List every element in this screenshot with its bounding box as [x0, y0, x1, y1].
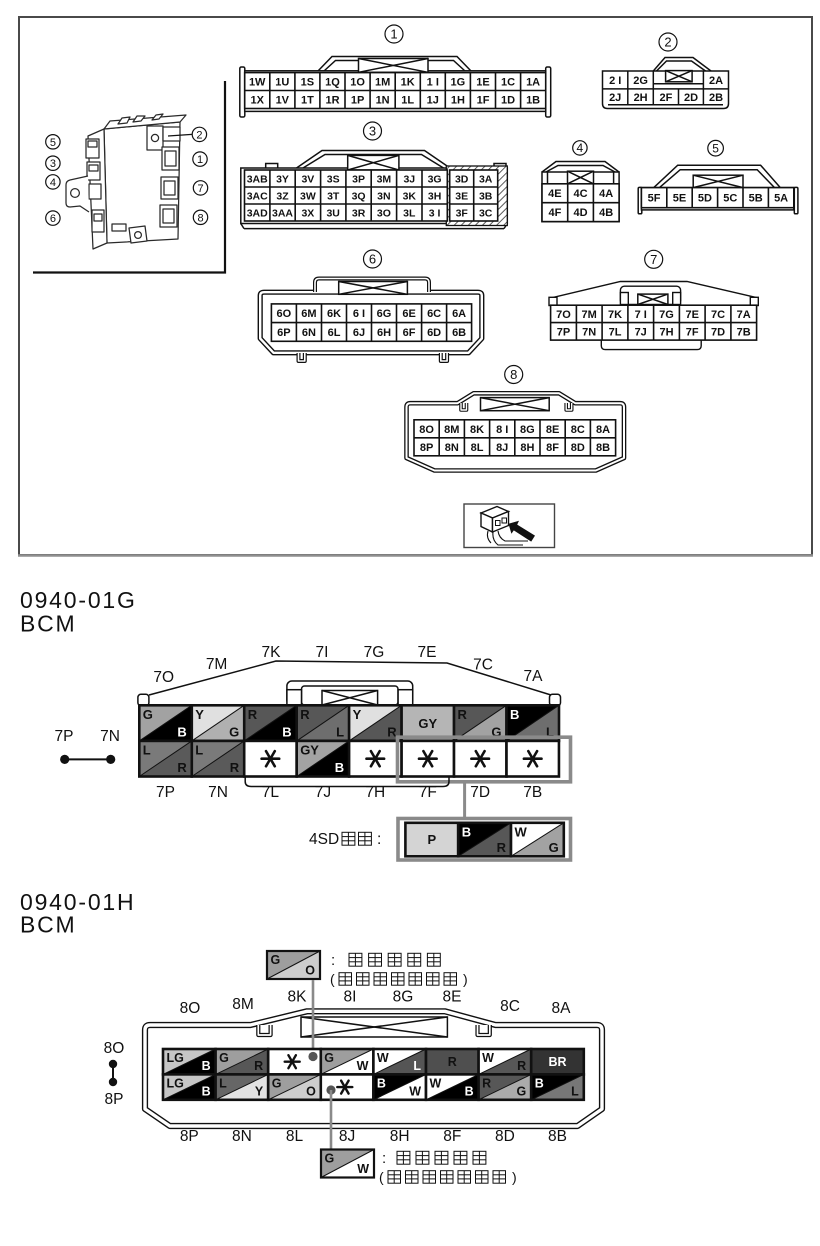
svg-text:3D: 3D	[455, 173, 469, 185]
svg-text:8 I: 8 I	[496, 424, 508, 436]
svg-text:8H: 8H	[520, 442, 534, 454]
svg-text:1P: 1P	[351, 95, 364, 107]
svg-text:5E: 5E	[673, 193, 686, 205]
svg-text:6L: 6L	[328, 327, 341, 339]
svg-text:1S: 1S	[301, 77, 314, 89]
svg-text:6E: 6E	[402, 308, 415, 320]
svg-text:G: G	[272, 1076, 282, 1090]
svg-text:6 I: 6 I	[353, 308, 365, 320]
svg-text:G: G	[219, 1051, 229, 1065]
svg-text:): )	[512, 1169, 517, 1185]
svg-text:4C: 4C	[573, 188, 587, 200]
svg-text:P: P	[427, 832, 436, 847]
svg-text:6M: 6M	[301, 308, 316, 320]
svg-text:3E: 3E	[455, 190, 468, 202]
svg-text:O: O	[305, 964, 315, 978]
svg-text:8D: 8D	[571, 442, 585, 454]
svg-text:B: B	[202, 1059, 211, 1073]
svg-text:8C: 8C	[500, 998, 520, 1015]
svg-text:8O: 8O	[419, 424, 434, 436]
svg-text:7H: 7H	[365, 784, 385, 801]
svg-text:R: R	[300, 707, 310, 722]
svg-text:1J: 1J	[427, 95, 439, 107]
svg-text:G: G	[549, 840, 559, 855]
svg-text:): )	[463, 971, 468, 987]
svg-text:8K: 8K	[288, 989, 308, 1006]
svg-text:3R: 3R	[352, 207, 366, 219]
svg-text:1C: 1C	[501, 77, 515, 89]
svg-text:8A: 8A	[596, 424, 610, 436]
svg-text:7B: 7B	[737, 326, 751, 338]
svg-text:8L: 8L	[286, 1128, 304, 1145]
svg-text:6D: 6D	[427, 327, 441, 339]
svg-text:3F: 3F	[456, 207, 469, 219]
svg-text:6N: 6N	[302, 327, 316, 339]
svg-text:8: 8	[197, 212, 203, 224]
svg-text:1X: 1X	[250, 95, 264, 107]
svg-text:3Z: 3Z	[276, 190, 289, 202]
svg-text:8D: 8D	[495, 1128, 515, 1145]
svg-text:8E: 8E	[546, 424, 559, 436]
svg-text:6K: 6K	[327, 308, 341, 320]
svg-text:6P: 6P	[277, 327, 290, 339]
svg-text:G: G	[324, 1051, 334, 1065]
svg-text:BCM: BCM	[20, 912, 77, 938]
svg-text:LG: LG	[167, 1051, 184, 1065]
svg-text:3AC: 3AC	[247, 190, 268, 202]
svg-text:6F: 6F	[403, 327, 416, 339]
svg-text:7A: 7A	[737, 309, 751, 321]
svg-text:2H: 2H	[634, 92, 648, 104]
svg-text:3V: 3V	[301, 173, 314, 185]
svg-text:1L: 1L	[401, 95, 414, 107]
svg-text:6G: 6G	[377, 308, 392, 320]
svg-text::: :	[377, 831, 381, 848]
svg-text:5C: 5C	[723, 193, 737, 205]
svg-text:5: 5	[50, 137, 56, 149]
svg-text:2: 2	[664, 35, 671, 50]
svg-text:8E: 8E	[443, 989, 462, 1006]
svg-text:G: G	[143, 707, 153, 722]
svg-text:R: R	[230, 760, 240, 775]
svg-text:7P: 7P	[156, 784, 175, 801]
svg-text:L: L	[413, 1059, 421, 1073]
svg-text:1M: 1M	[375, 77, 390, 89]
svg-text:3W: 3W	[300, 190, 316, 202]
svg-text:4: 4	[50, 177, 56, 189]
svg-text:1R: 1R	[325, 95, 339, 107]
svg-text:8H: 8H	[390, 1128, 410, 1145]
svg-text:G: G	[229, 724, 239, 739]
svg-text:7P: 7P	[557, 326, 570, 338]
svg-text:B: B	[535, 1076, 544, 1090]
svg-text:2: 2	[196, 129, 202, 141]
svg-text:GY: GY	[300, 742, 319, 757]
svg-text:8G: 8G	[393, 989, 414, 1006]
svg-text:7F: 7F	[419, 784, 437, 801]
svg-text:5A: 5A	[774, 193, 788, 205]
svg-text:2B: 2B	[709, 92, 723, 104]
svg-text:8: 8	[510, 367, 517, 382]
svg-text:1N: 1N	[376, 95, 390, 107]
svg-text:3: 3	[50, 158, 56, 170]
svg-text::: :	[382, 1150, 386, 1167]
svg-text:R: R	[497, 840, 507, 855]
svg-text:B: B	[462, 824, 471, 839]
svg-text:3N: 3N	[377, 190, 390, 202]
svg-text:1F: 1F	[477, 95, 490, 107]
svg-text:7J: 7J	[635, 326, 647, 338]
svg-text:5B: 5B	[749, 193, 763, 205]
svg-text:Y: Y	[195, 707, 204, 722]
svg-text:8F: 8F	[443, 1128, 461, 1145]
svg-text:6J: 6J	[353, 327, 365, 339]
svg-text::: :	[331, 952, 335, 969]
svg-text:4D: 4D	[573, 207, 587, 219]
svg-text:R: R	[458, 707, 468, 722]
svg-text:W: W	[409, 1084, 421, 1098]
svg-text:3B: 3B	[479, 190, 493, 202]
svg-text:R: R	[248, 707, 258, 722]
svg-text:6A: 6A	[452, 308, 466, 320]
svg-text:8I: 8I	[344, 989, 357, 1006]
svg-text:3AB: 3AB	[247, 173, 268, 185]
svg-text:1D: 1D	[501, 95, 515, 107]
svg-text:B: B	[202, 1084, 211, 1098]
svg-text:3T: 3T	[327, 190, 340, 202]
svg-text:L: L	[143, 742, 151, 757]
svg-text:3H: 3H	[428, 190, 441, 202]
svg-text:L: L	[195, 742, 203, 757]
svg-text:1: 1	[197, 154, 203, 166]
svg-text:5: 5	[712, 142, 719, 156]
svg-text:1A: 1A	[526, 77, 540, 89]
svg-text:B: B	[177, 724, 186, 739]
svg-text:6: 6	[369, 252, 376, 267]
svg-text:7D: 7D	[711, 326, 725, 338]
svg-text:8M: 8M	[444, 424, 459, 436]
svg-text:7O: 7O	[556, 309, 571, 321]
svg-text:2G: 2G	[633, 75, 648, 87]
svg-text:8P: 8P	[105, 1091, 124, 1108]
svg-text:8G: 8G	[520, 424, 535, 436]
svg-text:7G: 7G	[364, 644, 385, 661]
svg-text:7C: 7C	[711, 309, 725, 321]
svg-text:3O: 3O	[377, 207, 391, 219]
svg-text:4E: 4E	[548, 188, 561, 200]
svg-text:7M: 7M	[582, 309, 597, 321]
svg-text:L: L	[336, 724, 344, 739]
svg-text:8M: 8M	[232, 996, 254, 1013]
svg-text:7N: 7N	[208, 784, 228, 801]
svg-text:L: L	[571, 1084, 579, 1098]
svg-text:R: R	[254, 1059, 263, 1073]
svg-text:G: G	[516, 1084, 526, 1098]
svg-text:3: 3	[369, 124, 376, 139]
svg-text:O: O	[306, 1084, 316, 1098]
svg-text:3M: 3M	[377, 173, 392, 185]
svg-text:7: 7	[650, 252, 657, 267]
svg-text:7N: 7N	[582, 326, 596, 338]
svg-text:3P: 3P	[352, 173, 365, 185]
svg-text:BR: BR	[548, 1055, 566, 1069]
svg-text:3Q: 3Q	[352, 190, 366, 202]
svg-text:1O: 1O	[350, 77, 365, 89]
svg-text:(: (	[379, 1169, 384, 1185]
svg-text:GY: GY	[418, 716, 437, 731]
svg-text:7K: 7K	[608, 309, 622, 321]
svg-text:G: G	[325, 1152, 335, 1166]
svg-text:R: R	[517, 1059, 526, 1073]
svg-text:2F: 2F	[659, 92, 672, 104]
svg-text:8J: 8J	[496, 442, 508, 454]
svg-text:3X: 3X	[301, 207, 314, 219]
svg-text:4B: 4B	[599, 207, 613, 219]
svg-text:B: B	[377, 1076, 386, 1090]
svg-text:BCM: BCM	[20, 611, 77, 637]
svg-text:3C: 3C	[479, 207, 493, 219]
svg-text:1H: 1H	[451, 95, 465, 107]
svg-text:G: G	[271, 953, 281, 967]
svg-text:7N: 7N	[100, 728, 120, 745]
svg-text:4: 4	[577, 141, 584, 155]
svg-text:8A: 8A	[552, 1000, 572, 1017]
svg-text:7F: 7F	[686, 326, 699, 338]
svg-text:7L: 7L	[262, 784, 280, 801]
svg-text:5D: 5D	[698, 193, 712, 205]
svg-text:R: R	[177, 760, 187, 775]
svg-text:L: L	[219, 1076, 227, 1090]
svg-text:6C: 6C	[427, 308, 441, 320]
svg-text:3Y: 3Y	[276, 173, 289, 185]
svg-text:6B: 6B	[452, 327, 466, 339]
svg-text:3AD: 3AD	[247, 207, 268, 219]
svg-text:1B: 1B	[526, 95, 540, 107]
svg-text:7E: 7E	[418, 644, 437, 661]
svg-text:8L: 8L	[471, 442, 484, 454]
svg-text:7H: 7H	[659, 326, 673, 338]
svg-text:6: 6	[50, 213, 56, 225]
svg-text:3S: 3S	[327, 173, 340, 185]
svg-text:3AA: 3AA	[272, 207, 293, 219]
svg-text:8B: 8B	[596, 442, 610, 454]
svg-text:6H: 6H	[377, 327, 391, 339]
svg-text:B: B	[465, 1084, 474, 1098]
svg-text:3 I: 3 I	[429, 207, 441, 219]
svg-text:1E: 1E	[476, 77, 489, 89]
svg-text:1V: 1V	[276, 95, 290, 107]
svg-text:8N: 8N	[445, 442, 459, 454]
svg-text:1G: 1G	[451, 77, 466, 89]
svg-text:8O: 8O	[104, 1040, 125, 1057]
svg-text:W: W	[515, 824, 528, 839]
svg-text:8K: 8K	[470, 424, 484, 436]
svg-text:Y: Y	[255, 1084, 264, 1098]
svg-text:3G: 3G	[428, 173, 442, 185]
svg-text:7B: 7B	[523, 784, 542, 801]
svg-text:W: W	[357, 1059, 369, 1073]
svg-text:8C: 8C	[571, 424, 585, 436]
svg-text:5F: 5F	[648, 193, 661, 205]
svg-text:7C: 7C	[473, 657, 493, 674]
svg-text:3A: 3A	[479, 173, 493, 185]
svg-text:7M: 7M	[206, 656, 228, 673]
svg-text:7L: 7L	[609, 326, 622, 338]
svg-text:0940-01G: 0940-01G	[20, 587, 137, 613]
svg-text:6O: 6O	[277, 308, 292, 320]
svg-text:2A: 2A	[709, 75, 723, 87]
svg-text:7A: 7A	[524, 668, 544, 685]
svg-text:W: W	[430, 1076, 442, 1090]
svg-text:2J: 2J	[609, 92, 621, 104]
svg-text:7J: 7J	[315, 784, 331, 801]
svg-text:7K: 7K	[262, 644, 282, 661]
svg-text:1 I: 1 I	[427, 77, 439, 89]
svg-text:3J: 3J	[403, 173, 415, 185]
svg-text:LG: LG	[167, 1076, 184, 1090]
svg-text:2D: 2D	[684, 92, 698, 104]
svg-text:8F: 8F	[546, 442, 559, 454]
svg-text:7: 7	[197, 183, 203, 195]
svg-text:W: W	[377, 1051, 389, 1065]
svg-text:Y: Y	[353, 707, 362, 722]
svg-text:4SD: 4SD	[309, 831, 339, 848]
svg-text:4A: 4A	[599, 188, 613, 200]
svg-text:1: 1	[390, 27, 397, 42]
svg-text:7D: 7D	[470, 784, 490, 801]
svg-text:1Q: 1Q	[325, 77, 340, 89]
svg-text:R: R	[482, 1076, 491, 1090]
svg-text:2 I: 2 I	[609, 75, 621, 87]
svg-text:8P: 8P	[180, 1128, 199, 1145]
svg-text:8B: 8B	[548, 1128, 567, 1145]
svg-text:8N: 8N	[232, 1128, 252, 1145]
svg-text:7E: 7E	[685, 309, 698, 321]
svg-text:(: (	[330, 971, 335, 987]
svg-text:3K: 3K	[403, 190, 417, 202]
svg-text:1U: 1U	[275, 77, 289, 89]
svg-text:B: B	[282, 724, 291, 739]
svg-text:7G: 7G	[659, 309, 674, 321]
svg-text:3U: 3U	[326, 207, 339, 219]
svg-text:R: R	[448, 1055, 457, 1069]
svg-text:7P: 7P	[55, 728, 74, 745]
svg-text:1W: 1W	[249, 77, 266, 89]
svg-text:7O: 7O	[153, 669, 174, 686]
svg-text:8P: 8P	[420, 442, 433, 454]
svg-text:4F: 4F	[548, 207, 561, 219]
svg-text:1K: 1K	[401, 77, 415, 89]
svg-text:B: B	[510, 707, 519, 722]
svg-text:8O: 8O	[180, 1000, 201, 1017]
svg-text:7I: 7I	[316, 644, 329, 661]
svg-text:W: W	[482, 1051, 494, 1065]
svg-text:1T: 1T	[301, 95, 314, 107]
svg-text:W: W	[357, 1162, 369, 1176]
svg-text:8J: 8J	[339, 1128, 355, 1145]
svg-text:7 I: 7 I	[635, 309, 647, 321]
svg-text:3L: 3L	[403, 207, 416, 219]
svg-text:B: B	[335, 760, 344, 775]
